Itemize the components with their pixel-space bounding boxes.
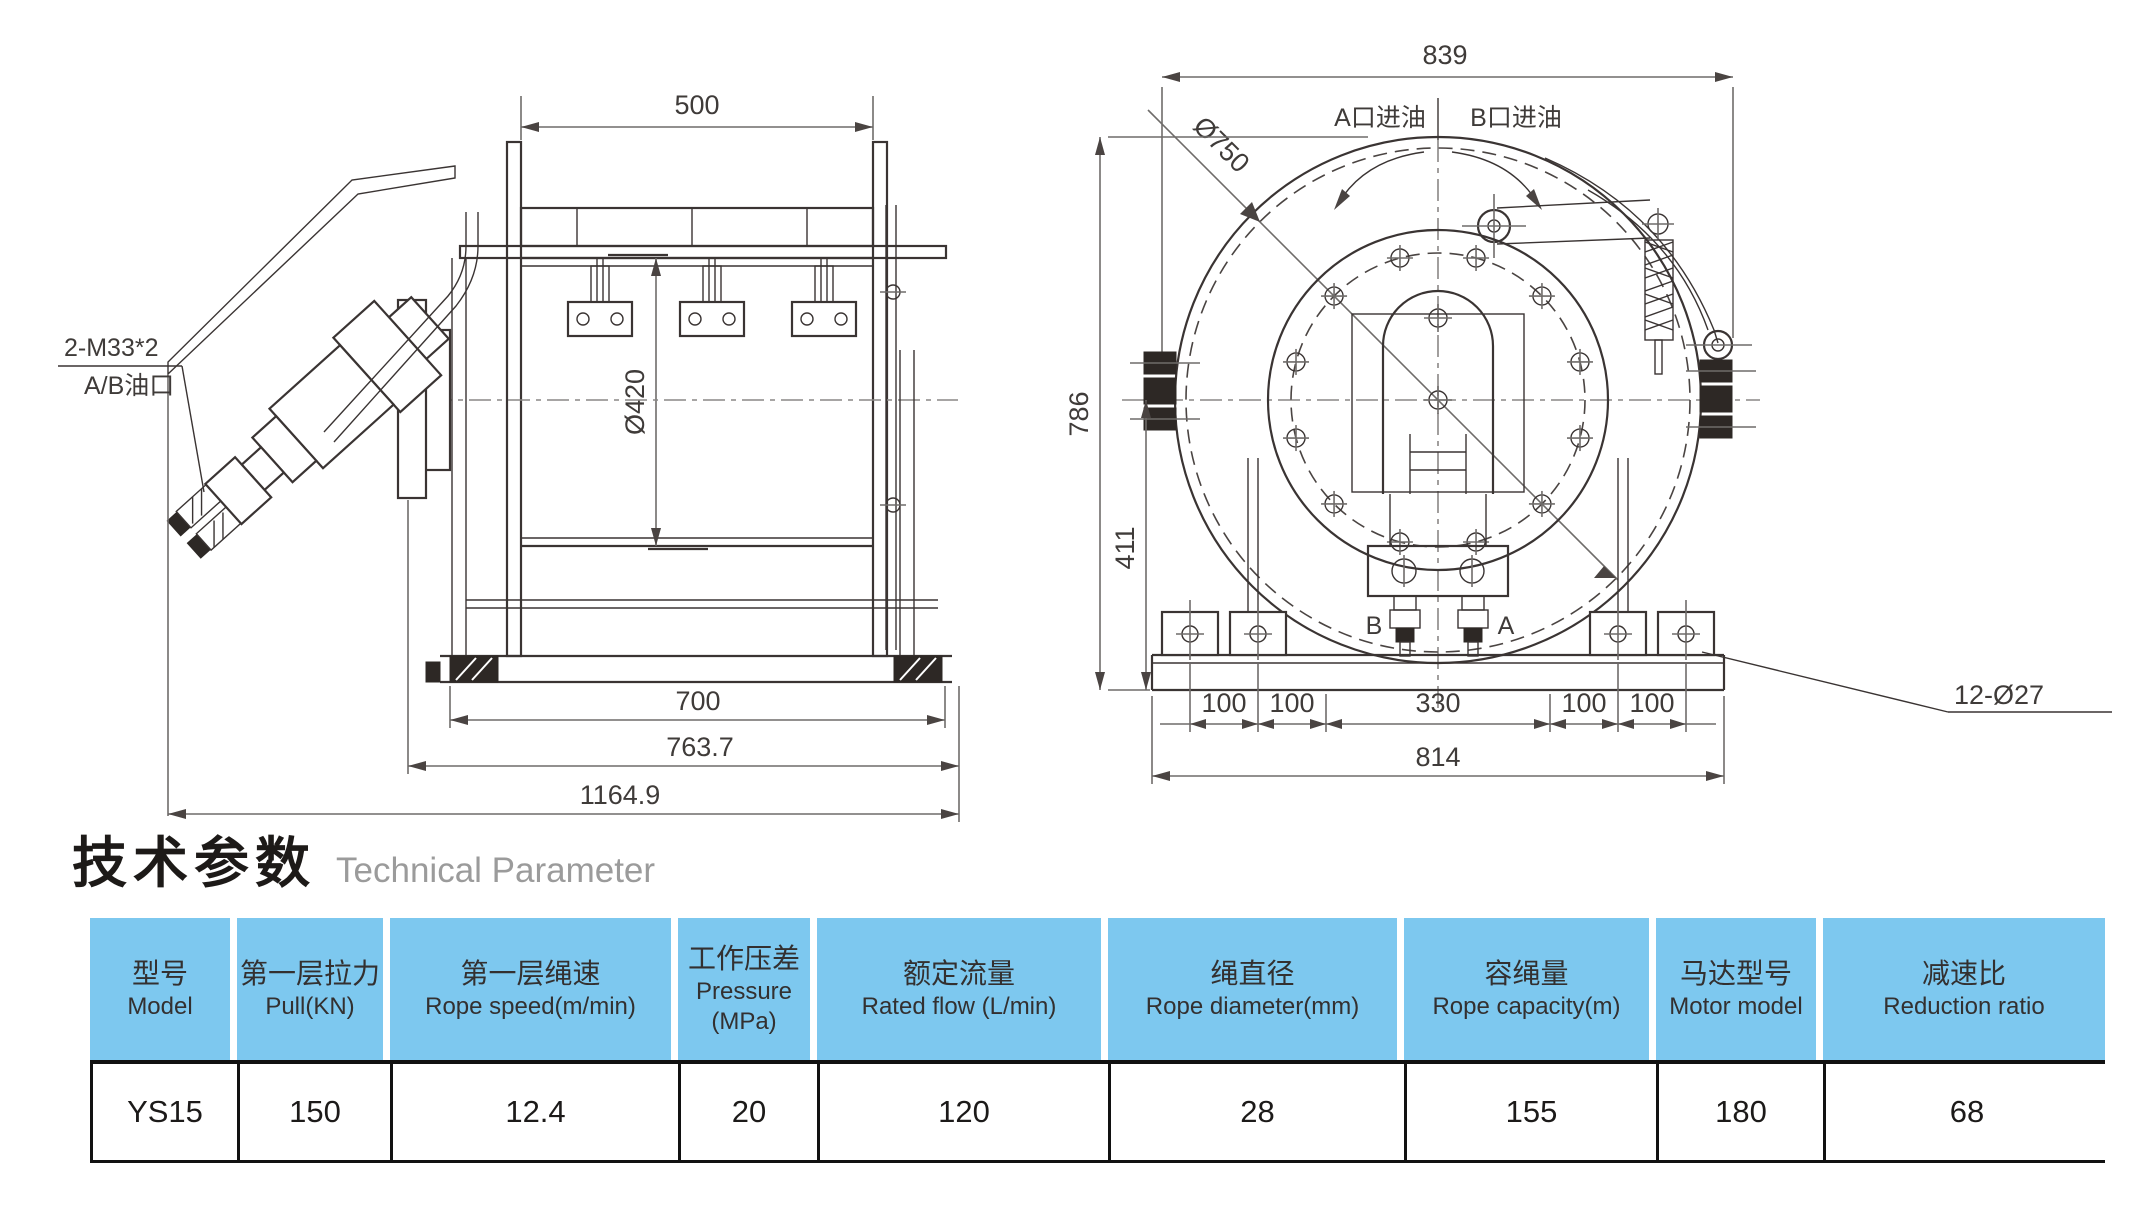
header-en: (MPa) [711,1007,776,1037]
dim-100-label: 100 [1269,688,1314,718]
dim-786: 786 [1064,137,1368,690]
header-en: Motor model [1669,992,1802,1022]
thread-label: 2-M33*2 [64,334,159,362]
dim-839: 839 [1162,40,1733,352]
port-a-label: A [1498,612,1515,640]
header-en: Rope diameter(mm) [1146,992,1359,1022]
brake-lever-assembly [1462,158,1752,374]
col-header-rope-diameter: 绳直径 Rope diameter(mm) [1108,918,1404,1060]
dim-100-label: 100 [1561,688,1606,718]
right-bolt-stack [1686,360,1756,438]
spec-table-data-row: YS15 150 12.4 20 120 28 155 180 68 [90,1060,2105,1163]
port-fitting-b [1390,596,1420,656]
header-en: Pressure [696,977,792,1007]
rope-clamp [680,258,744,336]
rope-clamp [792,258,856,336]
cell-reduction-ratio: 68 [1826,1064,2108,1160]
col-header-model: 型号 Model [90,918,237,1060]
section-title: 技术参数 Technical Parameter [72,818,655,898]
left-bolt-stack [1130,352,1200,430]
rope-clamps [568,258,856,336]
spec-table: 型号 Model 第一层拉力 Pull(KN) 第一层绳速 Rope speed… [90,918,2105,1163]
spec-table-header-row: 型号 Model 第一层拉力 Pull(KN) 第一层绳速 Rope speed… [90,918,2105,1060]
header-zh: 第一层拉力 [240,956,380,992]
foot-pad [426,662,440,682]
header-zh: 型号 [132,956,188,992]
dim-700: 700 [450,686,945,728]
cell-model: YS15 [93,1064,240,1160]
dim-814-label: 814 [1415,742,1460,772]
header-zh: 容绳量 [1484,956,1568,992]
dim-411: 411 [1110,400,1151,690]
port-a-inlet-label: A口进油 [1334,104,1426,132]
dim-1164-label: 1164.9 [580,780,661,810]
header-zh: 绳直径 [1210,956,1294,992]
header-en: Rope speed(m/min) [425,992,636,1022]
section-title-zh: 技术参数 [72,818,316,898]
header-zh: 第一层绳速 [460,956,600,992]
col-header-pressure: 工作压差 Pressure (MPa) [678,918,817,1060]
col-header-rope-speed: 第一层绳速 Rope speed(m/min) [390,918,678,1060]
port-fitting-a [1458,596,1488,656]
col-header-rated-flow: 额定流量 Rated flow (L/min) [817,918,1108,1060]
dim-100-label: 100 [1629,688,1674,718]
dim-763-label: 763.7 [666,732,734,762]
header-en: Rope capacity(m) [1432,992,1620,1022]
winch-front-view: 839 A口进油 B口进油 Ø750 [1064,40,2112,784]
rope-clamp [568,258,632,336]
holes-label: 12-Ø27 [1954,680,2044,710]
thread-port-label: 2-M33*2 A/B油口 [58,334,204,492]
dim-foot-spacing: 100 100 330 100 100 [1160,664,1716,732]
cell-motor-model: 180 [1659,1064,1826,1160]
winch-side-view: 500 [58,90,959,822]
section-title-en: Technical Parameter [336,851,655,891]
dim-750-label: Ø750 [1187,111,1255,179]
dim-700-label: 700 [675,686,720,716]
mount-foot [1658,600,1714,660]
cell-rope-capacity: 155 [1407,1064,1659,1160]
cell-rated-flow: 120 [820,1064,1111,1160]
dim-420-label: Ø420 [620,369,650,435]
header-en: Pull(KN) [265,992,354,1022]
mount-foot [1162,600,1218,660]
dim-500: 500 [521,90,873,140]
dim-839-label: 839 [1422,40,1467,70]
dim-411-label: 411 [1110,526,1140,569]
port-b-label: B [1366,612,1383,640]
drum-flange-left [507,142,521,656]
header-en: Reduction ratio [1883,992,2044,1022]
cell-pull: 150 [240,1064,393,1160]
center-bolt-icon [1424,304,1452,414]
cell-pressure: 20 [681,1064,820,1160]
technical-drawings: 500 [0,0,2152,880]
page: 500 [0,0,2152,1229]
dim-1164: 1164.9 [168,780,959,819]
foot-pad [450,656,498,682]
header-zh: 减速比 [1922,956,2006,992]
header-zh: 工作压差 [688,941,800,977]
ab-port-label: A/B油口 [84,372,174,400]
col-header-reduction-ratio: 减速比 Reduction ratio [1823,918,2105,1060]
dim-100-label: 100 [1201,688,1246,718]
cell-rope-speed: 12.4 [393,1064,681,1160]
col-header-rope-capacity: 容绳量 Rope capacity(m) [1404,918,1656,1060]
valve-block: B A [1366,494,1515,656]
cell-rope-diameter: 28 [1111,1064,1407,1160]
port-b-inlet-label: B口进油 [1470,104,1562,132]
dim-786-label: 786 [1064,391,1094,436]
dim-drum-diameter: Ø420 [608,255,708,549]
header-zh: 马达型号 [1680,956,1792,992]
dim-500-label: 500 [674,90,719,120]
col-header-pull: 第一层拉力 Pull(KN) [237,918,390,1060]
header-zh: 额定流量 [903,956,1015,992]
dim-330-label: 330 [1415,688,1460,718]
drum-flange-right [873,142,887,656]
col-header-motor-model: 马达型号 Motor model [1656,918,1823,1060]
foot-pad [894,656,942,682]
header-en: Model [127,992,192,1022]
header-en: Rated flow (L/min) [862,992,1057,1022]
holes-callout: 12-Ø27 [1702,652,2112,712]
